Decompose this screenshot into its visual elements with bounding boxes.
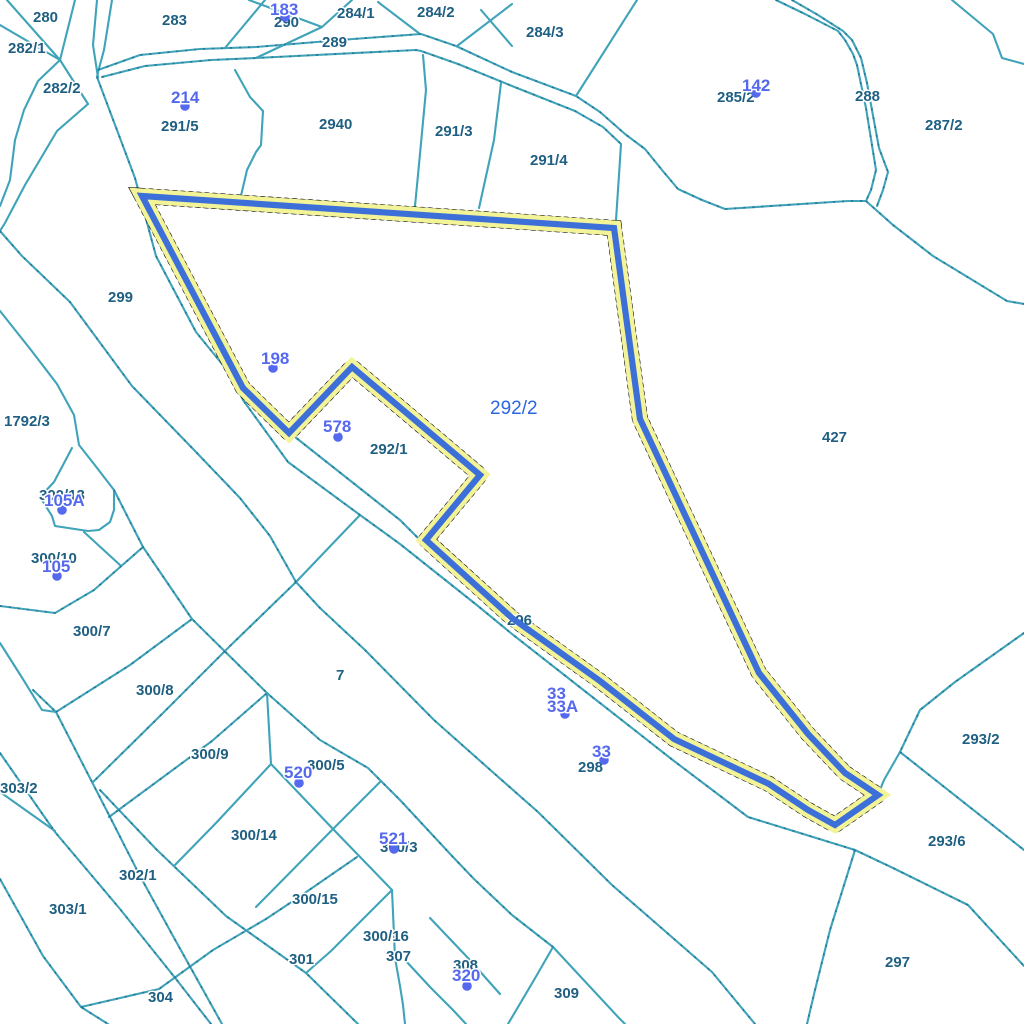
svg-text:142: 142 bbox=[742, 76, 770, 95]
svg-text:292/2: 292/2 bbox=[490, 398, 538, 419]
svg-text:289: 289 bbox=[322, 34, 347, 51]
svg-text:304: 304 bbox=[148, 989, 174, 1006]
svg-text:282/2: 282/2 bbox=[43, 80, 81, 97]
svg-text:291/3: 291/3 bbox=[435, 123, 473, 140]
svg-text:33: 33 bbox=[592, 742, 611, 761]
svg-text:298: 298 bbox=[578, 759, 603, 776]
svg-text:300/5: 300/5 bbox=[307, 757, 345, 774]
svg-text:307: 307 bbox=[386, 948, 411, 965]
svg-text:293/2: 293/2 bbox=[962, 731, 1000, 748]
svg-text:284/1: 284/1 bbox=[337, 5, 375, 22]
svg-text:198: 198 bbox=[261, 349, 289, 368]
svg-text:300/9: 300/9 bbox=[191, 746, 229, 763]
svg-text:309: 309 bbox=[554, 985, 579, 1002]
svg-text:283: 283 bbox=[162, 12, 187, 29]
svg-text:284/2: 284/2 bbox=[417, 4, 455, 21]
svg-text:183: 183 bbox=[270, 0, 298, 19]
svg-text:300/15: 300/15 bbox=[292, 891, 338, 908]
svg-text:300/8: 300/8 bbox=[136, 682, 174, 699]
svg-text:292/1: 292/1 bbox=[370, 441, 408, 458]
svg-text:300/7: 300/7 bbox=[73, 623, 111, 640]
svg-text:284/3: 284/3 bbox=[526, 24, 564, 41]
svg-text:105A: 105A bbox=[44, 491, 85, 510]
svg-text:1792/3: 1792/3 bbox=[4, 413, 50, 430]
svg-text:302/1: 302/1 bbox=[119, 867, 157, 884]
svg-text:293/6: 293/6 bbox=[928, 833, 966, 850]
svg-text:303/1: 303/1 bbox=[49, 901, 87, 918]
svg-text:7: 7 bbox=[336, 667, 344, 684]
svg-text:105: 105 bbox=[42, 557, 70, 576]
svg-text:291/5: 291/5 bbox=[161, 118, 199, 135]
svg-text:282/1: 282/1 bbox=[8, 40, 46, 57]
svg-text:303/2: 303/2 bbox=[0, 780, 38, 797]
svg-text:297: 297 bbox=[885, 954, 910, 971]
svg-text:521: 521 bbox=[379, 829, 407, 848]
svg-text:2940: 2940 bbox=[319, 116, 352, 133]
svg-text:214: 214 bbox=[171, 88, 200, 107]
svg-text:288: 288 bbox=[855, 88, 880, 105]
svg-text:300/14: 300/14 bbox=[231, 827, 278, 844]
svg-text:287/2: 287/2 bbox=[925, 117, 963, 134]
svg-text:299: 299 bbox=[108, 289, 133, 306]
svg-text:427: 427 bbox=[822, 429, 847, 446]
svg-text:320: 320 bbox=[452, 966, 480, 985]
svg-text:520: 520 bbox=[284, 763, 312, 782]
svg-text:300/16: 300/16 bbox=[363, 928, 409, 945]
svg-text:578: 578 bbox=[323, 417, 351, 436]
svg-text:33A: 33A bbox=[547, 697, 578, 716]
svg-text:301: 301 bbox=[289, 951, 314, 968]
svg-text:280: 280 bbox=[33, 9, 58, 26]
svg-text:291/4: 291/4 bbox=[530, 152, 568, 169]
